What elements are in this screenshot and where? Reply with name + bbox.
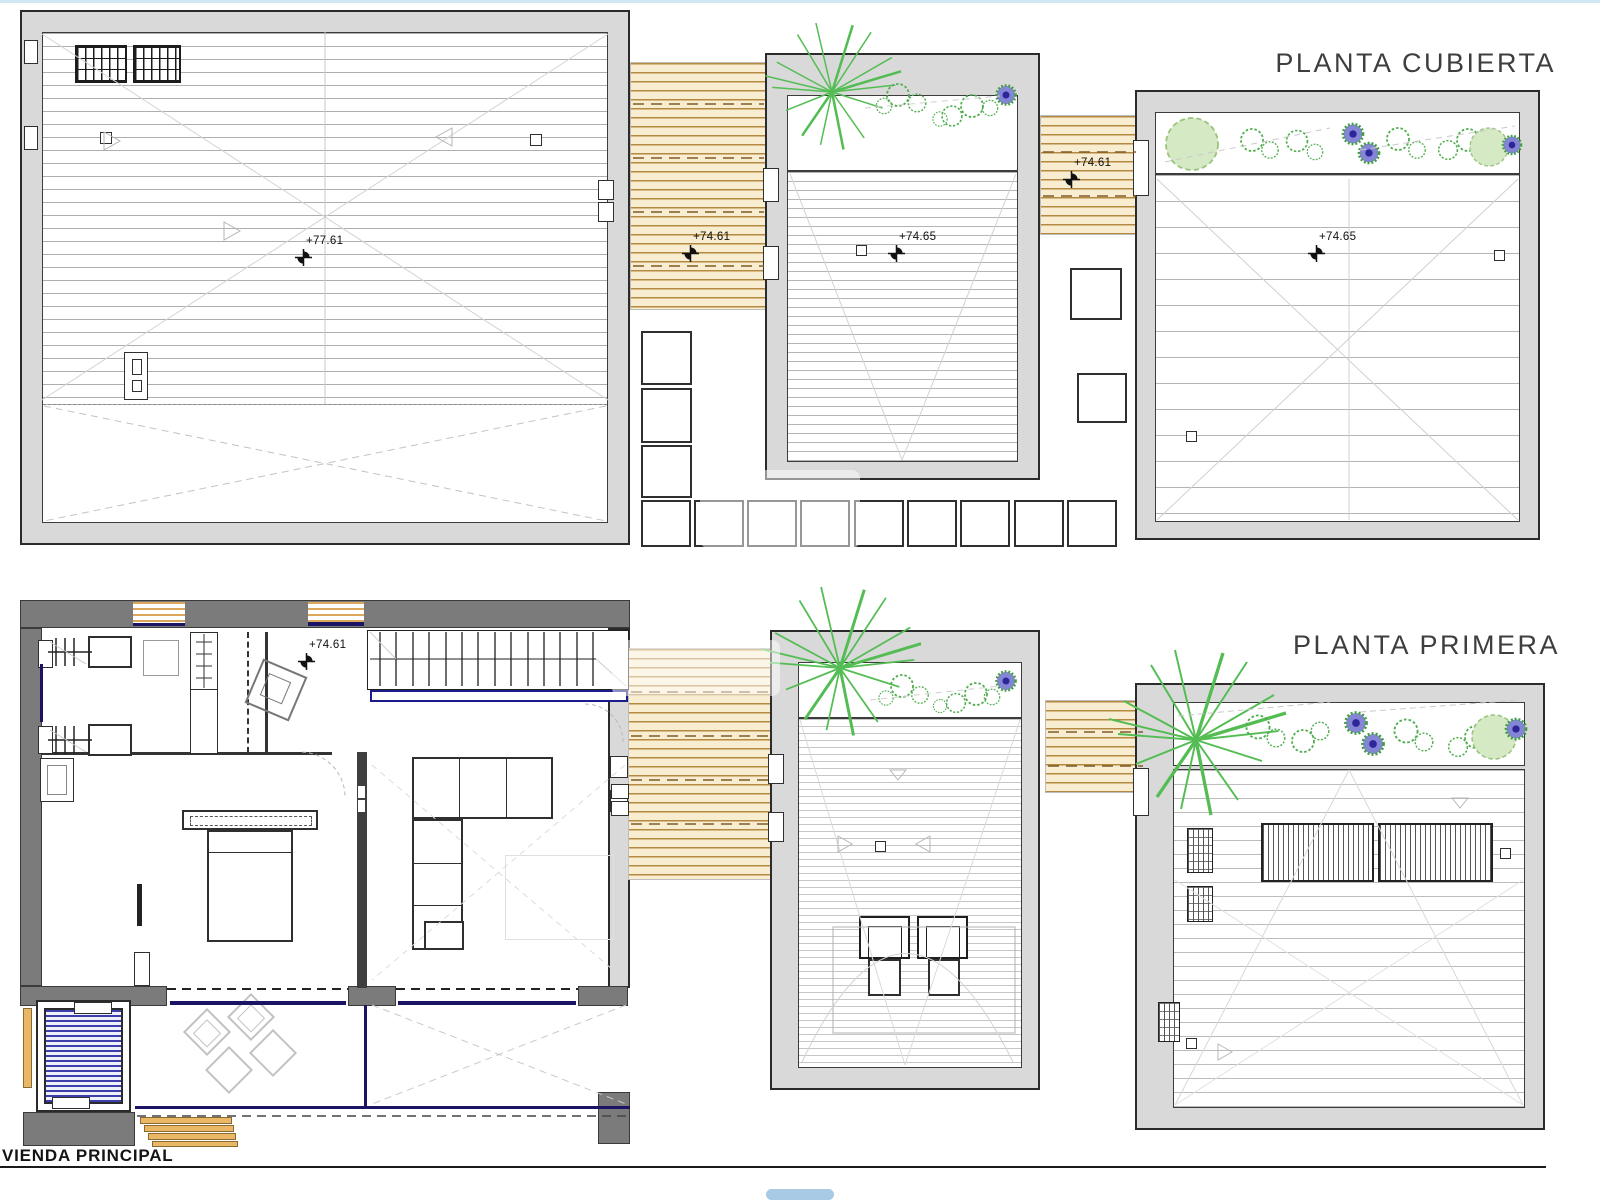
sheet-underline [0, 1166, 1546, 1168]
sun-lounger [1261, 823, 1374, 882]
sofa-chaise [424, 921, 464, 950]
guest-house-roof [787, 171, 1018, 462]
level-marker-roof-annex: +74.65 [1308, 232, 1356, 265]
radiator [137, 884, 142, 926]
roof-marker [530, 134, 542, 146]
main-house-roof [42, 32, 608, 523]
armchair [859, 916, 910, 959]
staircase [367, 630, 629, 690]
level-marker-roof-main: +77.61 [295, 236, 343, 269]
wood-step [144, 1125, 234, 1132]
roof-marker [856, 245, 867, 256]
wall-clip [1133, 768, 1149, 816]
scrollbar-thumb[interactable] [766, 1189, 834, 1200]
roof-grille [133, 45, 181, 83]
wall-clip [763, 246, 779, 280]
terrace-cushion [183, 1008, 231, 1056]
wall-clip [598, 180, 614, 200]
sliding-door-glass [398, 1001, 576, 1005]
sun-lounger-small [1158, 1002, 1180, 1042]
roof-deck-a [630, 62, 766, 310]
level-marker-roof-deck-a: +74.61 [682, 232, 730, 265]
guest-roof-planter [787, 95, 1018, 171]
ottoman [868, 959, 901, 996]
glass-railing [364, 1005, 367, 1107]
planter [1014, 500, 1064, 547]
rug [505, 855, 614, 940]
wardrobe [190, 632, 218, 754]
level-marker-roof-deck-b: +74.61 [1063, 158, 1111, 191]
first-floor-deck-b [1045, 700, 1145, 793]
planter [641, 445, 692, 498]
terrace-cushion [249, 1029, 297, 1077]
planter [907, 500, 957, 547]
shower [143, 640, 179, 676]
side-table [611, 801, 629, 816]
wall-clip [24, 40, 38, 64]
sofa-back-row [412, 757, 553, 819]
shower-tray [40, 758, 74, 802]
first-floor-title: PLANTA PRIMERA [1150, 630, 1560, 661]
bed-headboard [182, 810, 318, 830]
planter [1070, 268, 1122, 320]
sink [38, 726, 53, 754]
pool-step [52, 1097, 90, 1109]
wall-clip [763, 168, 779, 202]
planter [641, 500, 691, 547]
ottoman [928, 959, 960, 996]
watermark [700, 470, 860, 548]
window-opening [133, 602, 185, 626]
window-opening [308, 602, 364, 626]
planter [641, 388, 692, 443]
top-edge-strip [0, 0, 1600, 3]
planter [854, 500, 904, 547]
terrace-wall [23, 1112, 135, 1146]
wall-clip [610, 756, 628, 778]
survey-cross-icon [1063, 171, 1080, 188]
guest-planter [798, 662, 1022, 718]
nightstand [134, 952, 150, 986]
planter [960, 500, 1010, 547]
bottom-wall-segment [578, 986, 628, 1006]
toilet [88, 724, 132, 756]
roof-marker [1186, 431, 1197, 442]
guest-terrace-deck [798, 718, 1022, 1068]
watermark [612, 640, 780, 696]
survey-cross-icon [1308, 245, 1325, 262]
roof-grille [75, 45, 127, 83]
level-marker-roof-guest: +74.65 [888, 232, 936, 265]
survey-cross-icon [682, 245, 699, 262]
glass-railing [135, 1106, 630, 1109]
roof-plan-title: PLANTA CUBIERTA [1150, 48, 1556, 79]
room-divider-wall [357, 752, 367, 988]
roof-marker [1494, 250, 1505, 261]
deck-marker [875, 841, 886, 852]
sun-lounger-small [1187, 828, 1213, 873]
planter [641, 331, 692, 385]
survey-cross-icon [888, 245, 905, 262]
floor-plan-sheet: PLANTA CUBIERTA PLANTA PRIMERA [0, 0, 1600, 1200]
toilet [88, 636, 132, 668]
wall-clip [768, 754, 784, 784]
terrace-cushion [205, 1046, 253, 1094]
wood-step [148, 1133, 236, 1140]
interior-wall [42, 752, 332, 755]
roof-marker [100, 132, 112, 144]
window-glass-line [40, 664, 43, 722]
annex-planter [1173, 702, 1525, 766]
wall-clip [598, 202, 614, 222]
wall-clip [1133, 140, 1149, 196]
bed [207, 830, 293, 942]
sun-lounger [1378, 823, 1493, 882]
pool-step [74, 1002, 112, 1014]
annex-roof-planter [1155, 112, 1520, 174]
annex-terrace-deck [1173, 769, 1525, 1108]
sliding-door-glass [170, 1001, 346, 1005]
side-table [611, 784, 629, 799]
sheet-label: VIENDA PRINCIPAL [2, 1146, 173, 1166]
wood-step [140, 1117, 232, 1124]
deck-marker [1500, 848, 1511, 859]
roof-vent [124, 352, 148, 400]
wall-clip [768, 812, 784, 842]
planter [1077, 373, 1127, 423]
wall-clip [24, 126, 38, 150]
level-marker-first-floor: +74.61 [298, 640, 346, 673]
deck-marker [1186, 1038, 1197, 1049]
bottom-wall-segment [348, 986, 396, 1006]
survey-cross-icon [298, 653, 315, 670]
pool-water [44, 1008, 123, 1104]
planter [1067, 500, 1117, 547]
terrace-wall [598, 1092, 630, 1144]
stair-railing [370, 690, 628, 702]
main-house-left-wall [20, 628, 42, 986]
annex-roof [1155, 174, 1520, 522]
survey-cross-icon [295, 249, 312, 266]
wood-plank [23, 1008, 32, 1088]
armchair [917, 916, 968, 959]
sun-lounger-small [1187, 886, 1213, 922]
